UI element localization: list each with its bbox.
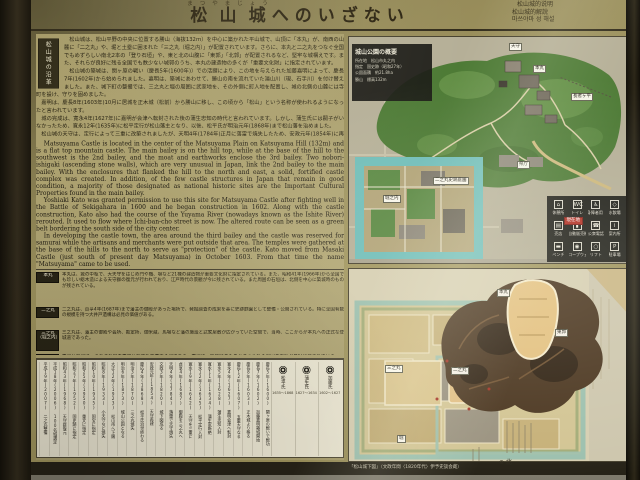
- legend-label: 身障者用トイレ: [588, 210, 605, 216]
- map-legend: ⌂ 休憩所 WC トイレ ♿ 身障者用トイレ ◇: [547, 196, 626, 262]
- legend-pictogram-icon: ☎: [591, 221, 600, 230]
- japanese-history-text: 松山城の沿革 松山城は、松山平野の中央に位置する勝山（海抜132ｍ）を中心に築か…: [36, 36, 344, 139]
- section-row: 二之丸 二之丸は、貞享4年(1687年)まで藩主の御殿があった場所で、発掘調査の…: [36, 307, 344, 330]
- japanese-paragraphs: 松山城の沿革 松山城は、松山平野の中央に位置する勝山（海抜132ｍ）を中心に築か…: [36, 36, 344, 139]
- old-castle-town-map: 本丸 東郭 二之丸 三之丸 堀: [348, 268, 628, 462]
- park-overview-box: 城山公園の概要 所在地 松山市丸之内指定 国史跡（昭和27年）公園面積 約21.…: [352, 44, 432, 101]
- chronology-entry: 寛永4年(1627) 嘉明会津へ転封: [223, 362, 231, 456]
- title-korean: 마쓰야마 성 해설: [512, 16, 608, 24]
- title-translations: 松山城的说明 松山城的解說 마쓰야마 성 해설: [512, 1, 608, 24]
- old-map-label-hori: 堀: [397, 435, 406, 443]
- wooden-post-left: [0, 0, 31, 480]
- chronology-entry: 昭和8年(1933) 小天守など焼失: [98, 362, 106, 456]
- section-label: 二之丸: [37, 308, 58, 313]
- title-zh-traditional: 松山城的解說: [512, 9, 608, 17]
- japanese-paragraph: 松山城の築城は、関ヶ原の戦い（慶長5年(1600年)）での活躍により、この地を与…: [36, 68, 344, 100]
- page-title: 松山城まつやまじょうへのいざない: [31, 1, 566, 26]
- legend-pictogram-icon: ▤: [554, 221, 563, 230]
- chronology-entry: 平成18年(2006) 100名城選定: [49, 362, 57, 456]
- japanese-paragraph: 嘉明は、慶長8年(1603年)10月に居城を正木城（松前）から勝山に移し、この頃…: [36, 99, 344, 115]
- park-overview-title: 城山公園の概要: [355, 47, 429, 56]
- chronology-entry: 明治3年(1870) 三之丸焼失: [127, 362, 135, 456]
- english-paragraph: Matsuyama Castle is located in the cente…: [36, 140, 344, 197]
- english-paragraphs: Matsuyama Castle is located in the cente…: [36, 140, 344, 268]
- section-row: 本丸 本丸は、城の中枢で、大天守をはじめ門や櫓、塀など21棟の建造物が重要文化財…: [36, 272, 344, 306]
- chronology-entry: 慶長12年(1607) 五重天守なる: [233, 362, 241, 456]
- map-label-ninomaru-garden: 二之丸史跡庭園: [433, 177, 469, 185]
- legend-pictogram-icon: ◇: [610, 200, 619, 209]
- section-text-wrap: 三之丸は、藩主の御殿や会所、勘定所、御米蔵、馬場など藩の施設と武家屋敷が広がって…: [62, 330, 344, 353]
- park-overview-line: 勝山 標高132m: [355, 77, 429, 83]
- legend-label: 自動販売機: [569, 231, 586, 237]
- clan-name: 加藤氏: [327, 376, 334, 390]
- chronology-columns: 加藤氏 1602〜1627 蒲生氏 1627〜1634: [37, 360, 343, 458]
- section-text: 二之丸は、貞享4年(1687年)まで藩主の御殿があった場所で、発掘調査の成果を基…: [62, 307, 344, 318]
- section-row: 東郭・北郭 東郭と北郭は、それぞれ城の東側と北側を防備する郭である。東郭は、築城…: [36, 354, 344, 355]
- clan-name: 蒲生氏: [303, 376, 310, 390]
- map-label-horinouchi: 堀之内: [383, 195, 401, 203]
- wooden-post-right: [626, 0, 640, 480]
- legend-item: ⌂ 休憩所: [550, 200, 567, 218]
- ninomaru-moat: [355, 157, 483, 261]
- clan-name: 松平氏: [280, 376, 287, 390]
- chronology-entry: 慶長7年(1602) 加藤嘉明築城開始: [252, 362, 260, 456]
- clan-years: 1602〜1627: [319, 391, 340, 396]
- section-label-box: 三之丸（堀之内）: [36, 330, 59, 351]
- title-zh-simplified: 松山城的说明: [512, 1, 608, 9]
- park-overview-lines: 所在地 松山市丸之内指定 国史跡（昭和27年）公園面積 約21.8ha勝山 標高…: [355, 58, 429, 83]
- sign-board: 松山城まつやまじょうへのいざない 松山城的说明 松山城的解說 마쓰야마 성 해설…: [31, 0, 626, 480]
- english-paragraph: In developing the castle town, the area …: [36, 232, 344, 267]
- current-location-marker: 現在地: [564, 217, 584, 225]
- chronology-entry: 慶長5年(1600) 関ヶ原の戦いで戦功: [262, 362, 270, 456]
- board-frame-bottom: [31, 462, 626, 475]
- section-label: 三之丸（堀之内）: [37, 331, 58, 340]
- map-label-honmaru: 本丸: [533, 65, 546, 73]
- title-divider: [31, 29, 626, 31]
- old-map-label-higashikuruwa: 東郭: [555, 329, 568, 337]
- section-text-wrap: 東郭と北郭は、それぞれ城の東側と北側を防備する郭である。東郭は、築城時のものと考…: [62, 354, 344, 355]
- legend-label: 休憩所: [552, 210, 564, 216]
- clan-crest-icon: [302, 366, 310, 374]
- section-label-box: 二之丸: [36, 307, 59, 318]
- map-label-kencho: 県庁: [517, 161, 530, 169]
- title-suffix: へのいざない: [272, 6, 410, 26]
- title-furigana: まつやまじょう: [187, 1, 275, 7]
- legend-item: i 案内所: [606, 221, 623, 239]
- section-divider: [36, 269, 344, 270]
- chronology-entry: 大正12年(1923) 松山市へ下賜: [107, 362, 115, 456]
- legend-pictogram-icon: ▬: [554, 242, 563, 251]
- clan-entry: 蒲生氏 1627〜1634: [295, 362, 317, 456]
- chronology-entry: 慶応4年(1868) 松平氏治世終わる: [136, 362, 144, 456]
- legend-label: 公衆電話: [588, 231, 604, 237]
- legend-label: 案内所: [609, 231, 621, 237]
- legend-item: ◉ ロープウェイ: [569, 242, 586, 260]
- legend-item: WC トイレ: [569, 200, 586, 218]
- clan-years: 1635〜1868: [272, 391, 293, 396]
- ground-strip: [31, 475, 626, 480]
- title-bar: 松山城まつやまじょうへのいざない 松山城的说明 松山城的解說 마쓰야마 성 해설: [31, 0, 626, 30]
- legend-pictogram-icon: WC: [573, 200, 582, 209]
- section-text-wrap: 本丸は、城の中枢で、大天守をはじめ門や櫓、塀など21棟の建造物が重要文化財に指定…: [62, 272, 344, 306]
- section-label-box: 本丸: [36, 272, 59, 283]
- chronology-entry: 天明4年(1784) 落雷で天守焼失: [165, 362, 173, 456]
- chronology-entry: 文政3年(1820) 城下図成る: [156, 362, 164, 456]
- park-map: 城山公園の概要 所在地 松山市丸之内指定 国史跡（昭和27年）公園面積 約21.…: [348, 36, 628, 264]
- japanese-paragraph: 松山城の天守は、定行によって三重に改築されましたが、天明4年(1784年)正月に…: [36, 131, 344, 140]
- chronology-entry: 明治6年(1873) 城山公園となる: [117, 362, 125, 456]
- chronology-entry: 昭和25年(1950) 重文に指定: [78, 362, 86, 456]
- legend-label: ベンチ: [552, 252, 564, 258]
- section-text-wrap: 二之丸は、貞享4年(1687年)まで藩主の御殿があった場所で、発掘調査の成果を基…: [62, 307, 344, 330]
- english-paragraph: It is said that the building of the cast…: [36, 267, 344, 268]
- castle-sections: 本丸 本丸は、城の中枢で、大天守をはじめ門や櫓、塀など21棟の建造物が重要文化財…: [36, 272, 344, 355]
- history-sidebar-label: 松山城の沿革: [38, 39, 59, 89]
- legend-pictogram-icon: ◉: [573, 242, 582, 251]
- chronology-entry: 寛永12年(1635) 松平定行入封: [194, 362, 202, 456]
- old-map-caption: 「松山城下図」（文政年間〈1820年代〉伊予史談会蔵）: [349, 464, 462, 470]
- legend-pictogram-icon: ○: [591, 242, 600, 251]
- legend-item: ☎ 公衆電話: [588, 221, 605, 239]
- legend-item: ○ リフト: [588, 242, 605, 260]
- chronology-entry: 安政元年(1854) 天守再建: [146, 362, 154, 456]
- legend-pictogram-icon: P: [610, 242, 619, 251]
- chronology-entry: 貞享4年(1687) 御殿を三之丸へ: [175, 362, 183, 456]
- section-text: 本丸は、城の中枢で、大天守をはじめ門や櫓、塀など21棟の建造物が重要文化財に指定…: [62, 272, 344, 289]
- chronology-entry: 昭和10年(1935) 国宝に指定: [88, 362, 96, 456]
- japanese-paragraph: 松山城は、松山平野の中央に位置する勝山（海抜132ｍ）を中心に築かれた平山城で、…: [36, 36, 344, 68]
- japanese-paragraph: 城の完成は、寛永4年(1627年)に嘉明が会津へ転封された後の蒲生忠知の時代と言…: [36, 115, 344, 131]
- title-kanji: 松山城: [187, 6, 275, 26]
- clan-crest-icon: [279, 366, 287, 374]
- clan-entry: 加藤氏 1602〜1627: [319, 362, 341, 456]
- clan-crest-icon: [326, 366, 334, 374]
- legend-item: ▬ ベンチ: [550, 242, 567, 260]
- chronology-entry: 昭和27年(1952) 国史跡に指定: [69, 362, 77, 456]
- section-text: 三之丸は、藩主の御殿や会所、勘定所、御米蔵、馬場など藩の施設と武家屋敷が広がって…: [62, 330, 344, 341]
- chronology-entry: 平成19年(2007) 二之丸整備: [40, 362, 48, 456]
- chronology-entry: 寛永19年(1642) 天守を三重に: [185, 362, 193, 456]
- old-map-label-honmaru: 本丸: [497, 289, 510, 297]
- section-text: 東郭と北郭は、それぞれ城の東側と北側を防備する郭である。東郭は、築城時のものと考…: [62, 354, 344, 355]
- clan-entry: 松平氏 1635〜1868: [272, 362, 294, 456]
- legend-label: ロープウェイ: [569, 252, 586, 258]
- old-map-label-sannomaru: 三之丸: [385, 365, 403, 373]
- clan-years: 1627〜1634: [296, 391, 317, 396]
- legend-pictogram-icon: ♿: [591, 200, 600, 209]
- map-label-tenshu: 天守: [509, 43, 522, 51]
- history-panel: 松山城の沿革 松山城は、松山平野の中央に位置する勝山（海抜132ｍ）を中心に築か…: [36, 34, 344, 460]
- legend-pictogram-icon: ⌂: [554, 200, 563, 209]
- english-history-text: Matsuyama Castle is located in the cente…: [36, 140, 344, 268]
- chronology-entry: 慶長8年(1603) 正木城より移る: [243, 362, 251, 456]
- chronology-entry: 昭和43年(1968) 天守群復元: [59, 362, 67, 456]
- old-map-label-ninomaru: 二之丸: [451, 367, 469, 375]
- section-row: 三之丸（堀之内） 三之丸は、藩主の御殿や会所、勘定所、御米蔵、馬場など藩の施設と…: [36, 330, 344, 353]
- legend-label: 水飲場: [609, 210, 621, 216]
- legend-item: ♿ 身障者用トイレ: [588, 200, 605, 218]
- legend-pictogram-icon: i: [610, 221, 619, 230]
- section-label: 本丸: [37, 273, 58, 278]
- legend-label: 駐車場: [609, 252, 621, 258]
- legend-label: トイレ: [571, 210, 583, 216]
- legend-label: 売店: [554, 231, 562, 237]
- english-paragraph: Yoshiaki Kato was granted permission to …: [36, 197, 344, 232]
- legend-item: ◇ 水飲場: [606, 200, 623, 218]
- chronology-entry: 寛永11年(1634) 蒲生家断絶: [204, 362, 212, 456]
- chronology-table: 加藤氏 1602〜1627 蒲生氏 1627〜1634: [36, 358, 344, 458]
- legend-item: P 駐車場: [606, 242, 623, 260]
- map-label-chojagadaira: 長者ヶ平: [571, 93, 593, 101]
- legend-label: リフト: [590, 252, 602, 258]
- chronology-entry: 寛永5年(1628) 蒲生忠知入封: [214, 362, 222, 456]
- sign-photo: 松山城まつやまじょうへのいざない 松山城的说明 松山城的解說 마쓰야마 성 해설…: [0, 0, 640, 480]
- section-label-box: 東郭・北郭: [36, 354, 59, 355]
- north-compass-icon: ⊕ 北: [499, 457, 512, 466]
